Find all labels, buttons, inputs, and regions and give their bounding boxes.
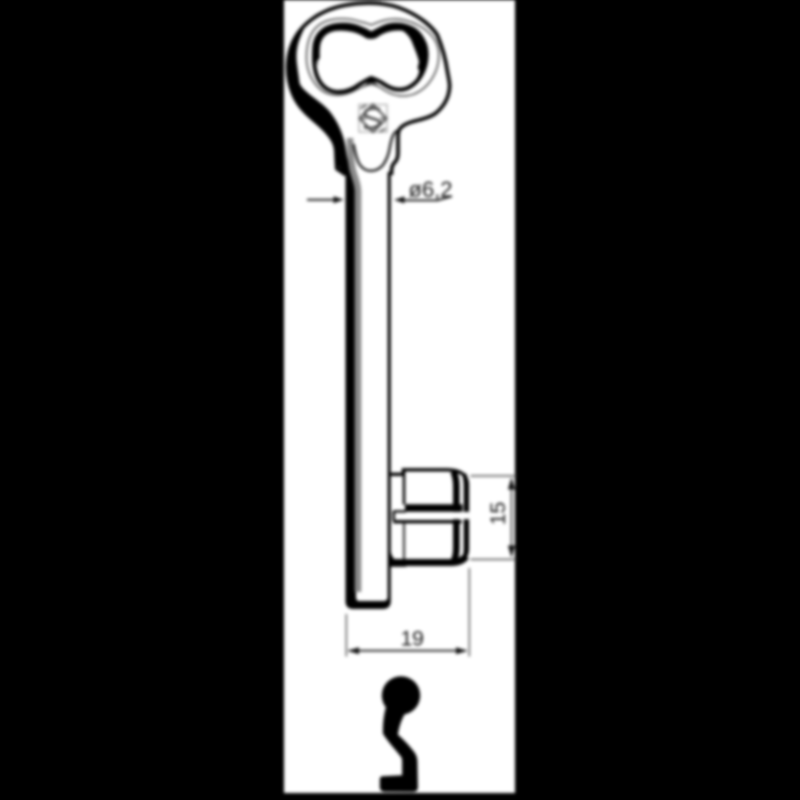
svg-text:ø6,2: ø6,2 bbox=[409, 177, 453, 202]
svg-text:15: 15 bbox=[486, 502, 510, 526]
svg-text:19: 19 bbox=[401, 626, 424, 650]
